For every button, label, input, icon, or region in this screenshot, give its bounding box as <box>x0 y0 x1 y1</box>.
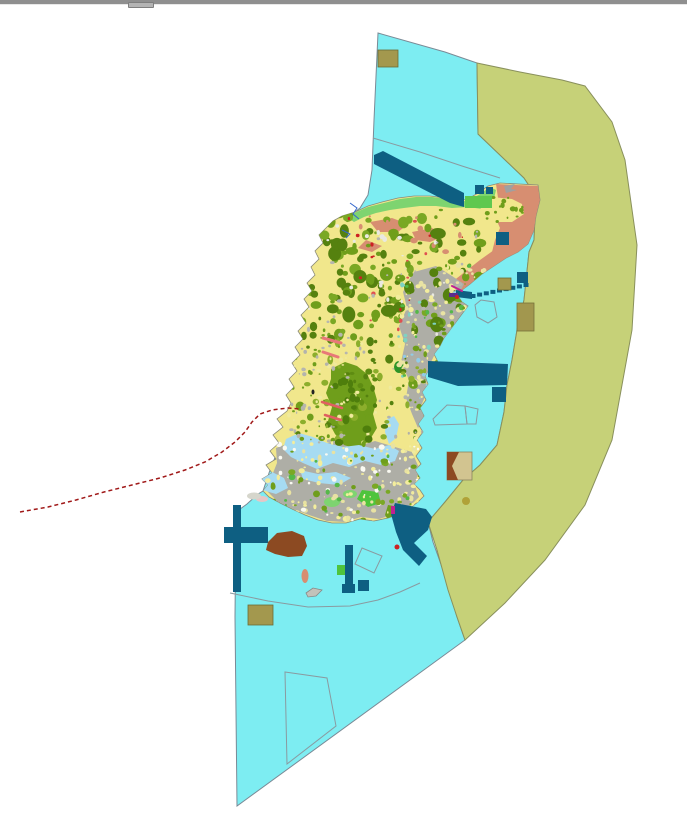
texture-blob <box>412 451 416 454</box>
texture-blob <box>305 430 308 433</box>
texture-blob <box>371 358 376 362</box>
texture-blob <box>370 385 375 392</box>
texture-blob <box>359 347 362 351</box>
texture-blob <box>404 334 408 338</box>
texture-blob <box>323 345 325 347</box>
texture-blob <box>303 350 307 354</box>
texture-blob <box>409 445 411 447</box>
texture-blob <box>402 384 404 387</box>
texture-blob <box>407 356 408 358</box>
texture-blob <box>374 340 377 344</box>
texture-blob <box>324 418 326 420</box>
texture-blob <box>321 421 325 424</box>
texture-blob <box>476 231 478 233</box>
texture-blob <box>365 435 373 443</box>
texture-blob <box>291 347 295 350</box>
texture-blob <box>338 333 343 337</box>
texture-blob <box>499 205 501 208</box>
texture-blob <box>417 448 419 451</box>
texture-blob <box>408 272 413 277</box>
texture-blob <box>357 504 361 508</box>
texture-blob <box>438 281 441 286</box>
texture-blob <box>292 441 295 444</box>
texture-blob <box>318 476 322 481</box>
texture-blob <box>414 318 417 321</box>
texture-blob <box>326 421 328 423</box>
texture-blob <box>494 211 497 214</box>
texture-blob <box>387 511 389 514</box>
texture-blob <box>417 261 422 265</box>
texture-blob <box>408 376 414 382</box>
texture-blob <box>365 369 372 375</box>
texture-blob <box>382 480 384 482</box>
texture-blob <box>349 508 353 511</box>
texture-blob <box>405 216 412 224</box>
khaki-rect-south <box>248 605 273 625</box>
texture-blob <box>409 407 411 409</box>
texture-blob <box>303 504 307 507</box>
texture-blob <box>422 345 425 349</box>
texture-blob <box>306 346 310 349</box>
texture-blob <box>408 312 411 316</box>
texture-blob <box>329 294 338 301</box>
blue-square-ne-3 <box>496 232 509 245</box>
texture-blob <box>380 500 385 505</box>
texture-blob <box>302 449 305 453</box>
page-background <box>0 0 687 821</box>
texture-blob <box>379 400 381 403</box>
texture-blob <box>350 393 356 402</box>
texture-blob <box>409 304 412 307</box>
south-pier-base <box>342 584 355 593</box>
texture-blob <box>450 310 453 313</box>
texture-blob <box>394 435 397 439</box>
texture-blob <box>381 458 389 463</box>
texture-blob <box>333 315 336 318</box>
texture-blob <box>404 267 407 270</box>
texture-blob <box>317 481 321 485</box>
texture-blob <box>405 358 407 360</box>
texture-blob <box>283 446 287 451</box>
texture-blob <box>277 475 280 481</box>
texture-blob <box>409 281 411 283</box>
texture-blob <box>284 499 287 502</box>
blue-square-ne-4 <box>517 272 528 283</box>
texture-blob <box>301 217 311 226</box>
texture-blob <box>401 255 403 256</box>
texture-blob <box>310 439 311 441</box>
texture-blob <box>289 428 293 431</box>
texture-blob <box>319 425 321 427</box>
texture-blob <box>332 477 337 482</box>
texture-blob <box>412 249 420 254</box>
texture-blob <box>395 274 405 281</box>
texture-blob <box>333 494 339 499</box>
texture-blob <box>390 401 394 405</box>
texture-blob <box>448 259 457 265</box>
texture-blob <box>462 307 465 310</box>
bridge-chain-segment <box>471 294 476 298</box>
texture-blob <box>318 460 323 467</box>
texture-blob <box>299 468 305 473</box>
texture-blob <box>303 223 308 230</box>
texture-blob <box>335 439 344 446</box>
texture-blob <box>292 410 295 412</box>
texture-blob <box>366 244 371 248</box>
texture-blob <box>359 276 362 279</box>
texture-blob <box>362 467 366 472</box>
texture-blob <box>302 443 304 444</box>
tan-rect-ne <box>517 303 534 331</box>
texture-blob <box>342 447 344 449</box>
texture-blob <box>302 372 306 376</box>
texture-blob <box>333 362 335 364</box>
texture-blob <box>271 482 275 487</box>
texture-blob <box>318 441 321 443</box>
texture-blob <box>335 483 340 488</box>
texture-blob <box>353 380 356 384</box>
texture-blob <box>337 269 344 276</box>
texture-blob <box>392 368 394 370</box>
texture-blob <box>318 350 321 353</box>
texture-blob <box>318 317 321 321</box>
texture-blob <box>413 346 420 352</box>
texture-blob <box>310 499 312 501</box>
texture-blob <box>288 469 295 475</box>
map-canvas[interactable] <box>0 0 687 821</box>
texture-blob <box>318 455 322 461</box>
texture-blob <box>315 460 318 463</box>
texture-blob <box>301 508 306 512</box>
texture-blob <box>366 395 369 398</box>
t-breakwater-bar <box>224 527 268 543</box>
texture-blob <box>302 386 304 388</box>
texture-blob <box>463 218 475 226</box>
texture-blob <box>316 369 321 372</box>
texture-blob <box>433 323 437 325</box>
texture-blob <box>396 387 402 391</box>
texture-blob <box>346 516 350 522</box>
texture-blob <box>396 482 400 485</box>
texture-blob <box>359 336 363 341</box>
texture-blob <box>416 284 421 288</box>
texture-blob <box>356 340 361 347</box>
blue-square-ne-1 <box>475 185 484 194</box>
texture-blob <box>328 345 331 348</box>
texture-blob <box>338 513 342 517</box>
texture-blob <box>373 369 379 374</box>
texture-blob <box>467 264 471 268</box>
texture-blob <box>496 220 499 223</box>
texture-blob <box>332 383 338 389</box>
texture-blob <box>317 396 322 399</box>
texture-blob <box>406 277 409 279</box>
texture-blob <box>325 363 328 366</box>
texture-blob <box>501 199 506 204</box>
texture-blob <box>299 304 308 310</box>
texture-blob <box>422 284 426 289</box>
texture-blob <box>410 238 418 244</box>
texture-blob <box>360 388 365 391</box>
texture-blob <box>519 208 524 213</box>
texture-blob <box>339 434 343 439</box>
texture-blob <box>424 317 426 319</box>
texture-blob <box>430 317 443 333</box>
texture-blob <box>359 392 362 395</box>
texture-blob <box>350 372 355 375</box>
texture-blob <box>323 328 326 332</box>
texture-blob <box>443 282 445 284</box>
texture-blob <box>388 229 399 238</box>
texture-blob <box>394 302 406 313</box>
texture-blob <box>421 307 426 311</box>
texture-blob <box>364 494 366 496</box>
bridge-chain-segment <box>490 290 495 294</box>
texture-blob <box>387 470 391 473</box>
texture-blob <box>372 255 375 257</box>
texture-blob <box>401 371 405 374</box>
texture-blob <box>453 218 460 227</box>
khaki-dot-se <box>462 497 470 505</box>
texture-blob <box>302 368 305 370</box>
texture-blob <box>417 380 420 385</box>
texture-blob <box>329 427 331 430</box>
texture-blob <box>384 420 389 424</box>
texture-blob <box>270 441 275 444</box>
texture-blob <box>293 448 296 451</box>
texture-blob <box>386 274 388 276</box>
texture-blob <box>309 240 317 250</box>
texture-blob <box>465 272 468 274</box>
texture-blob <box>404 457 407 462</box>
texture-blob <box>279 456 283 460</box>
texture-blob <box>449 315 454 320</box>
texture-blob <box>474 276 476 278</box>
texture-blob <box>298 481 300 484</box>
texture-blob <box>330 261 335 264</box>
texture-blob <box>417 375 421 380</box>
texture-blob <box>425 289 430 293</box>
salmon-islet <box>302 569 309 583</box>
texture-blob <box>346 247 359 255</box>
texture-blob <box>327 304 339 313</box>
texture-blob <box>396 295 401 300</box>
texture-blob <box>311 291 318 298</box>
texture-blob <box>372 294 375 298</box>
texture-blob <box>311 301 322 309</box>
texture-blob <box>456 281 459 284</box>
texture-blob <box>301 458 304 461</box>
texture-blob <box>297 434 301 438</box>
texture-blob <box>418 242 423 245</box>
texture-blob <box>307 327 310 332</box>
texture-blob <box>321 347 324 349</box>
blue-square-south <box>358 580 369 591</box>
texture-blob <box>342 415 349 424</box>
texture-blob <box>331 386 333 388</box>
texture-blob <box>297 425 300 429</box>
texture-blob <box>315 405 319 408</box>
texture-blob <box>331 366 335 371</box>
texture-blob <box>351 405 357 409</box>
texture-blob <box>354 454 357 458</box>
texture-blob <box>373 403 377 408</box>
texture-blob <box>411 354 414 356</box>
texture-blob <box>441 311 446 315</box>
texture-blob <box>339 400 341 402</box>
texture-blob <box>400 282 404 287</box>
texture-blob <box>346 493 349 496</box>
texture-blob <box>355 391 359 394</box>
texture-blob <box>453 223 456 226</box>
texture-blob <box>291 343 294 345</box>
texture-blob <box>381 424 388 429</box>
texture-blob <box>462 236 463 238</box>
texture-blob <box>290 451 293 453</box>
texture-blob <box>311 458 315 462</box>
texture-blob <box>361 473 364 475</box>
texture-blob <box>346 399 349 402</box>
texture-blob <box>298 501 300 503</box>
texture-blob <box>360 456 365 460</box>
texture-blob <box>343 457 346 460</box>
texture-blob <box>464 283 465 285</box>
texture-blob <box>475 235 477 239</box>
texture-blob <box>332 374 334 376</box>
texture-blob <box>386 490 391 494</box>
texture-blob <box>301 348 303 350</box>
texture-blob <box>403 355 406 359</box>
texture-blob <box>342 307 355 323</box>
texture-blob <box>406 383 408 385</box>
bridge-chain-segment <box>484 291 489 295</box>
texture-blob <box>439 305 441 307</box>
texture-blob <box>385 355 393 364</box>
texture-blob <box>319 209 325 216</box>
texture-blob <box>458 232 462 238</box>
texture-blob <box>372 316 378 322</box>
texture-blob <box>447 270 450 273</box>
texture-blob <box>287 490 291 495</box>
texture-blob <box>413 220 417 223</box>
texture-blob <box>360 399 365 405</box>
texture-blob <box>412 331 415 334</box>
texture-blob <box>370 319 372 321</box>
texture-blob <box>370 242 373 246</box>
texture-blob <box>363 495 365 498</box>
texture-blob <box>339 358 343 363</box>
texture-blob <box>399 457 401 460</box>
texture-blob <box>310 322 317 331</box>
texture-blob <box>417 213 427 224</box>
texture-blob <box>353 320 363 330</box>
texture-blob <box>355 356 358 360</box>
texture-blob <box>346 423 353 429</box>
texture-blob <box>316 435 318 437</box>
texture-blob <box>344 373 346 374</box>
texture-blob <box>382 264 384 267</box>
magenta-mark-se <box>391 506 395 514</box>
texture-blob <box>369 297 371 299</box>
texture-blob <box>291 500 294 503</box>
khaki-square-ne <box>498 278 511 290</box>
texture-blob <box>418 226 424 232</box>
texture-blob <box>423 351 427 357</box>
texture-blob <box>326 514 328 516</box>
texture-blob <box>415 216 418 219</box>
texture-blob <box>356 510 360 514</box>
texture-blob <box>486 217 489 219</box>
texture-blob <box>329 419 331 421</box>
texture-blob <box>398 277 400 279</box>
texture-blob <box>345 352 348 355</box>
texture-blob <box>351 485 356 489</box>
texture-blob <box>342 344 346 347</box>
texture-blob <box>402 493 407 497</box>
texture-blob <box>476 246 481 253</box>
texture-blob <box>401 273 402 275</box>
texture-blob <box>290 482 293 484</box>
texture-blob <box>389 499 394 503</box>
texture-blob <box>412 384 414 386</box>
texture-blob <box>401 449 405 453</box>
texture-blob <box>359 224 363 230</box>
texture-blob <box>429 295 433 299</box>
texture-blob <box>327 439 331 442</box>
texture-blob <box>427 357 429 360</box>
texture-blob <box>357 293 368 302</box>
texture-blob <box>426 310 430 315</box>
texture-blob <box>350 452 353 455</box>
texture-blob <box>324 496 325 497</box>
texture-blob <box>377 373 383 381</box>
texture-blob <box>442 332 447 336</box>
texture-blob <box>387 409 389 411</box>
texture-blob <box>404 281 414 294</box>
t-breakwater-stem <box>233 505 241 592</box>
texture-blob <box>346 456 348 458</box>
texture-blob <box>298 269 307 275</box>
texture-blob <box>306 478 308 480</box>
texture-blob <box>374 231 377 234</box>
texture-blob <box>380 250 387 259</box>
texture-blob <box>371 476 373 479</box>
texture-blob <box>401 300 403 304</box>
texture-blob <box>345 448 349 452</box>
texture-blob <box>393 481 396 486</box>
texture-blob <box>330 357 332 360</box>
texture-blob <box>424 224 431 233</box>
texture-blob <box>325 453 328 455</box>
texture-blob <box>380 450 383 453</box>
texture-blob <box>411 407 413 408</box>
texture-blob <box>391 463 393 465</box>
texture-blob <box>304 382 311 386</box>
texture-blob <box>369 496 371 498</box>
texture-blob <box>360 342 363 345</box>
texture-blob <box>377 304 381 308</box>
texture-blob <box>350 460 352 462</box>
texture-blob <box>374 447 376 450</box>
texture-blob <box>294 504 297 506</box>
green-rect-ne <box>465 196 492 208</box>
texture-blob <box>266 468 269 471</box>
texture-blob <box>405 285 409 288</box>
gray-flat <box>247 493 261 500</box>
texture-blob <box>386 449 388 451</box>
texture-blob <box>471 272 474 275</box>
texture-blob <box>405 361 408 364</box>
